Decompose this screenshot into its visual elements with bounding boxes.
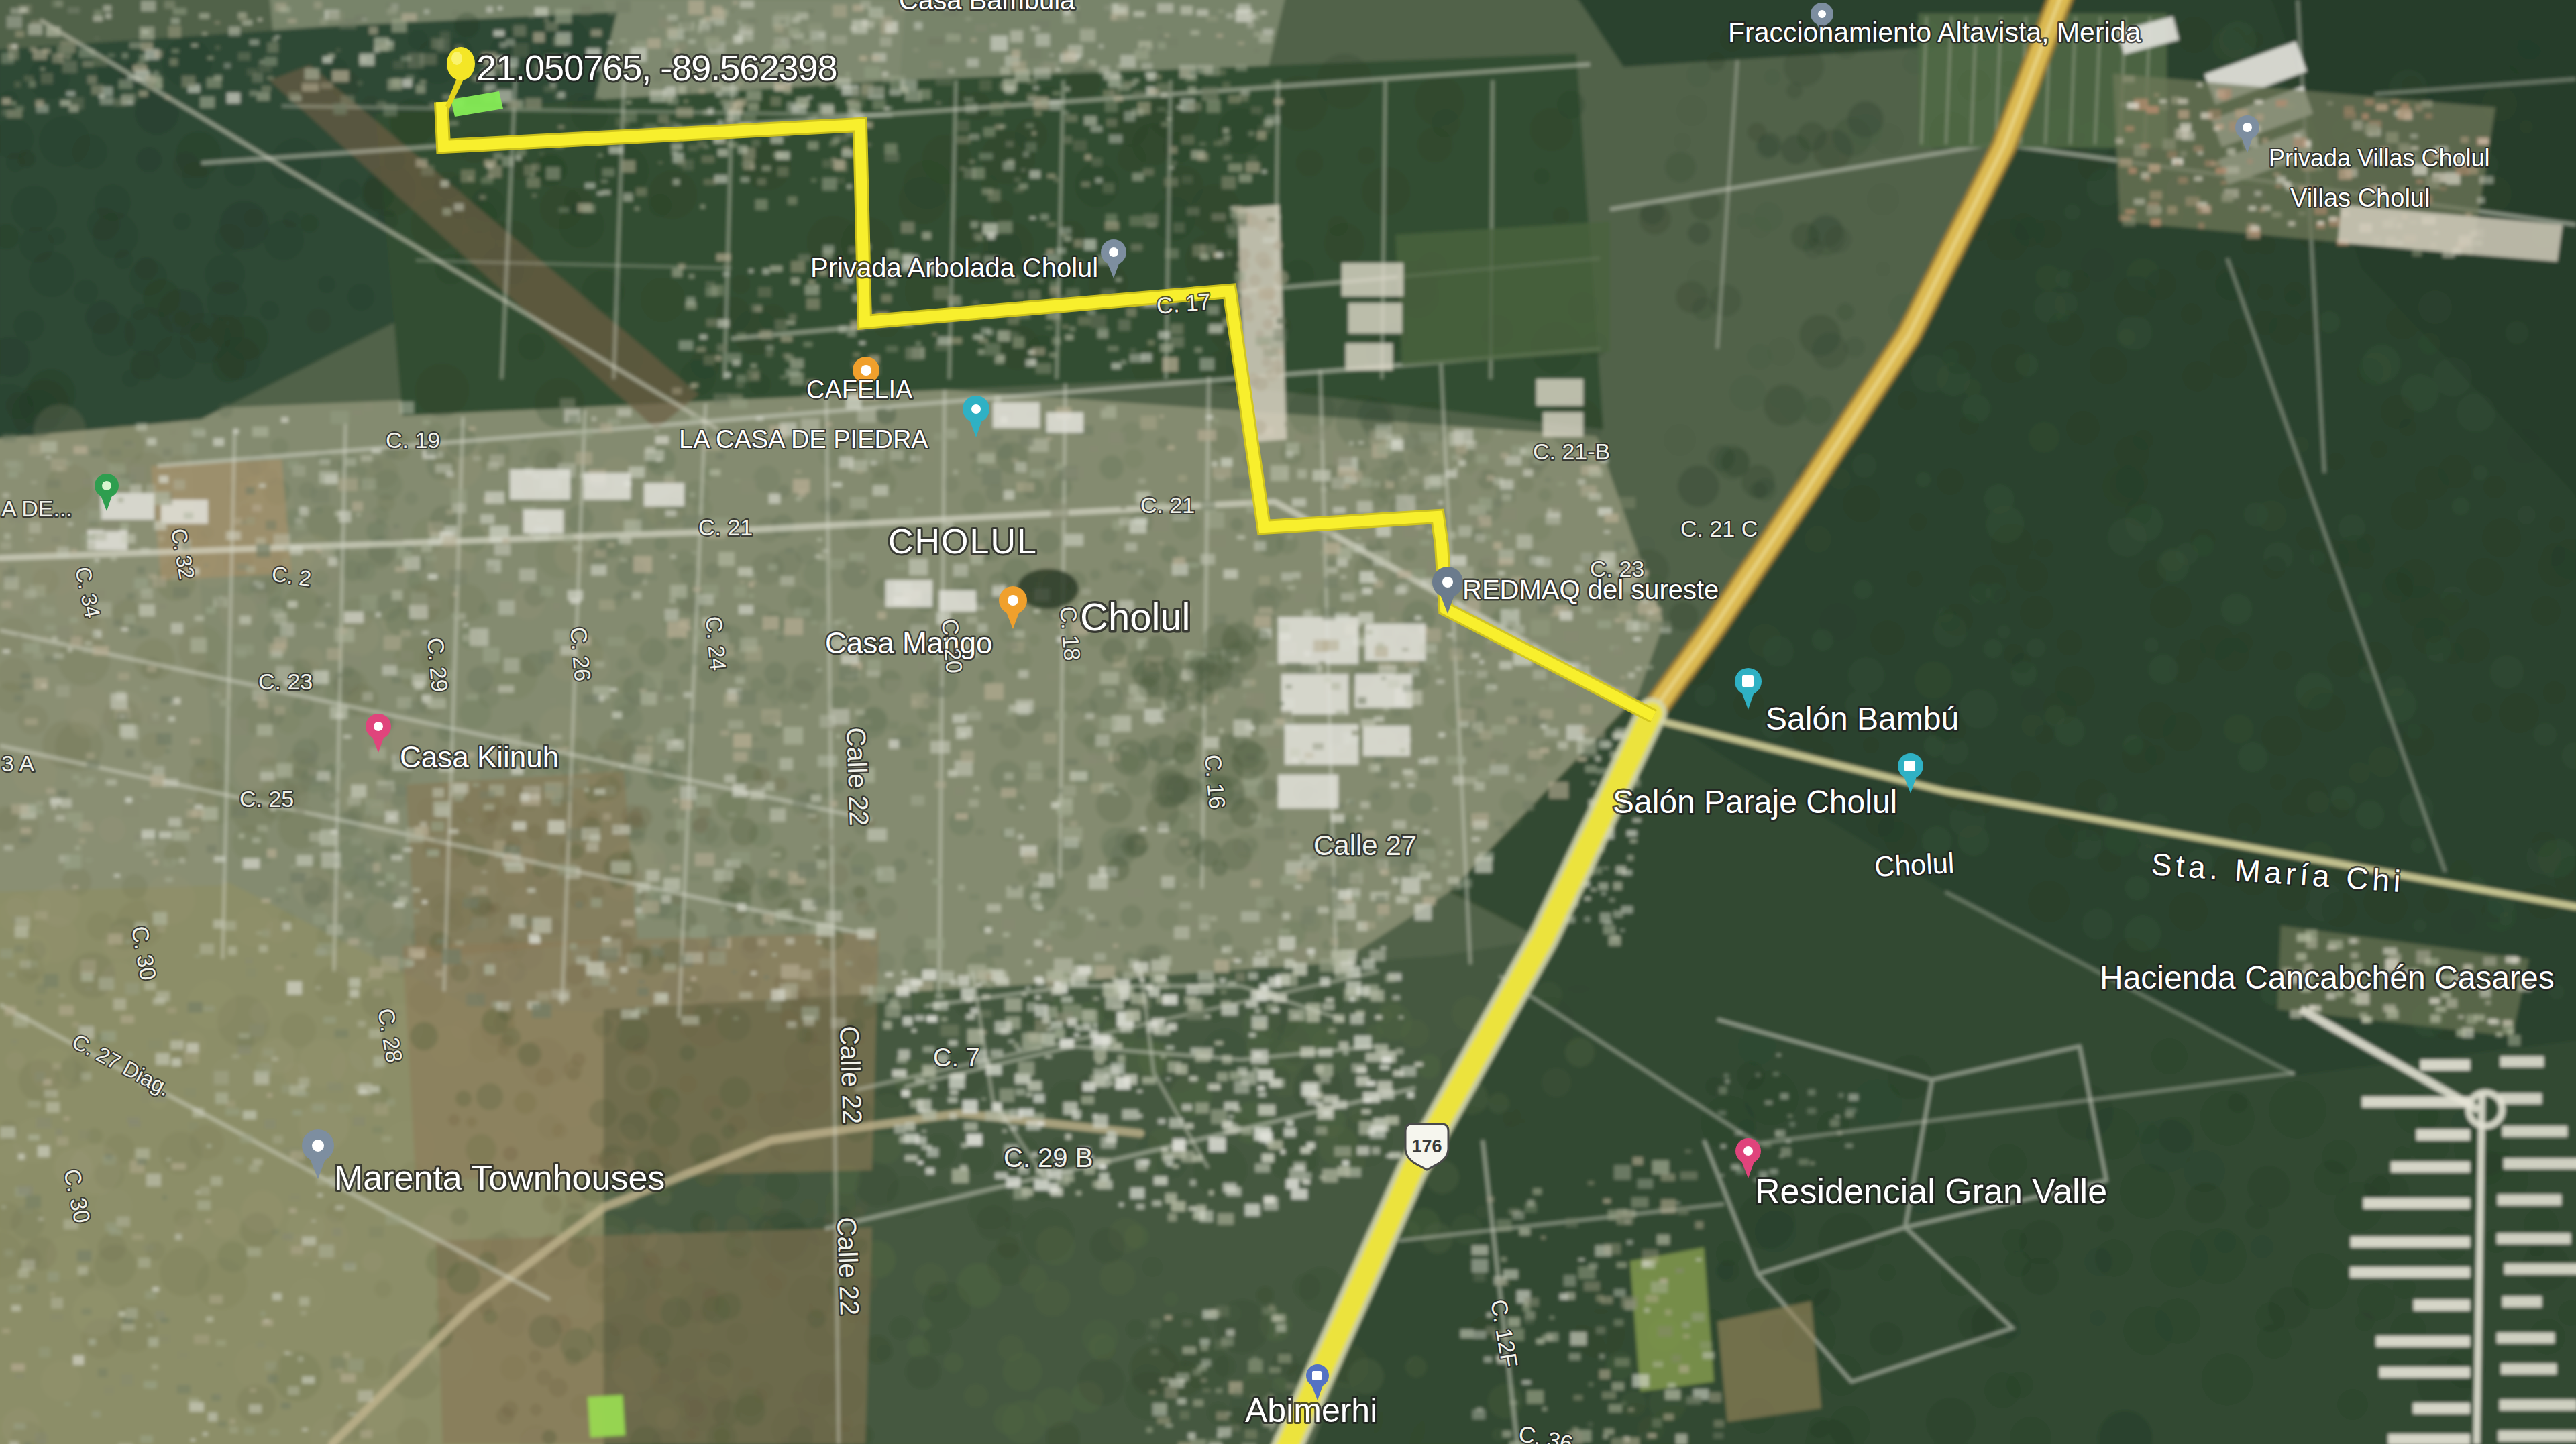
svg-text:Marenta Townhouses: Marenta Townhouses	[334, 1158, 665, 1197]
svg-text:Calle 22: Calle 22	[841, 727, 874, 826]
svg-text:Villas Cholul: Villas Cholul	[2290, 184, 2430, 212]
svg-text:Privada Arbolada Cholul: Privada Arbolada Cholul	[810, 253, 1098, 282]
svg-text:C. 21-B: C. 21-B	[1533, 439, 1610, 464]
svg-text:LA CASA DE PIEDRA: LA CASA DE PIEDRA	[679, 425, 928, 453]
svg-text:C. 24: C. 24	[701, 615, 731, 671]
svg-text:21.050765, -89.562398: 21.050765, -89.562398	[476, 48, 837, 88]
svg-text:Calle 22: Calle 22	[832, 1217, 865, 1316]
svg-text:C. 17: C. 17	[1155, 288, 1212, 319]
svg-text:Abimerhi: Abimerhi	[1245, 1392, 1377, 1429]
svg-text:C. 20: C. 20	[937, 618, 967, 674]
svg-text:CHOLUL: CHOLUL	[888, 522, 1038, 561]
svg-text:C. 21: C. 21	[698, 514, 753, 540]
svg-text:Cholul: Cholul	[1080, 595, 1190, 638]
svg-text:Calle 27: Calle 27	[1313, 830, 1417, 861]
svg-text:Casa Bambula: Casa Bambula	[899, 0, 1075, 15]
svg-text:Casa Mango: Casa Mango	[825, 626, 992, 659]
svg-text:176: 176	[1411, 1136, 1442, 1156]
svg-text:C. 25: C. 25	[239, 786, 294, 812]
svg-text:CAFELIA: CAFELIA	[806, 376, 913, 404]
svg-text:Salón Paraje Cholul: Salón Paraje Cholul	[1613, 784, 1897, 820]
svg-text:C. 23: C. 23	[1590, 556, 1644, 581]
svg-text:C. 7: C. 7	[933, 1044, 980, 1072]
svg-text:Fraccionamiento Altavista, Mer: Fraccionamiento Altavista, Merida	[1728, 17, 2141, 48]
svg-text:C. 26: C. 26	[566, 626, 596, 682]
svg-text:Casa Kiinuh: Casa Kiinuh	[400, 740, 559, 773]
svg-text:C. 21: C. 21	[1140, 492, 1195, 518]
svg-text:3 A: 3 A	[1, 751, 34, 776]
svg-text:C. 16: C. 16	[1200, 753, 1230, 810]
svg-text:A DE...: A DE...	[1, 496, 72, 521]
svg-text:Calle 22: Calle 22	[835, 1025, 867, 1125]
svg-text:C. 19: C. 19	[386, 427, 440, 453]
svg-text:C. 21 C: C. 21 C	[1680, 516, 1758, 541]
svg-text:Privada Villas Cholul: Privada Villas Cholul	[2269, 144, 2490, 172]
svg-text:C. 29: C. 29	[423, 636, 453, 693]
svg-text:Residencial Gran Valle: Residencial Gran Valle	[1755, 1172, 2107, 1211]
svg-text:Salón Bambú: Salón Bambú	[1766, 701, 1959, 736]
svg-text:Hacienda Cancabchén Casares: Hacienda Cancabchén Casares	[2100, 960, 2555, 995]
svg-text:C. 29 B: C. 29 B	[1004, 1143, 1093, 1172]
svg-text:C. 18: C. 18	[1055, 605, 1085, 661]
svg-text:Cholul: Cholul	[1874, 847, 1955, 883]
svg-text:C. 23: C. 23	[258, 669, 313, 694]
